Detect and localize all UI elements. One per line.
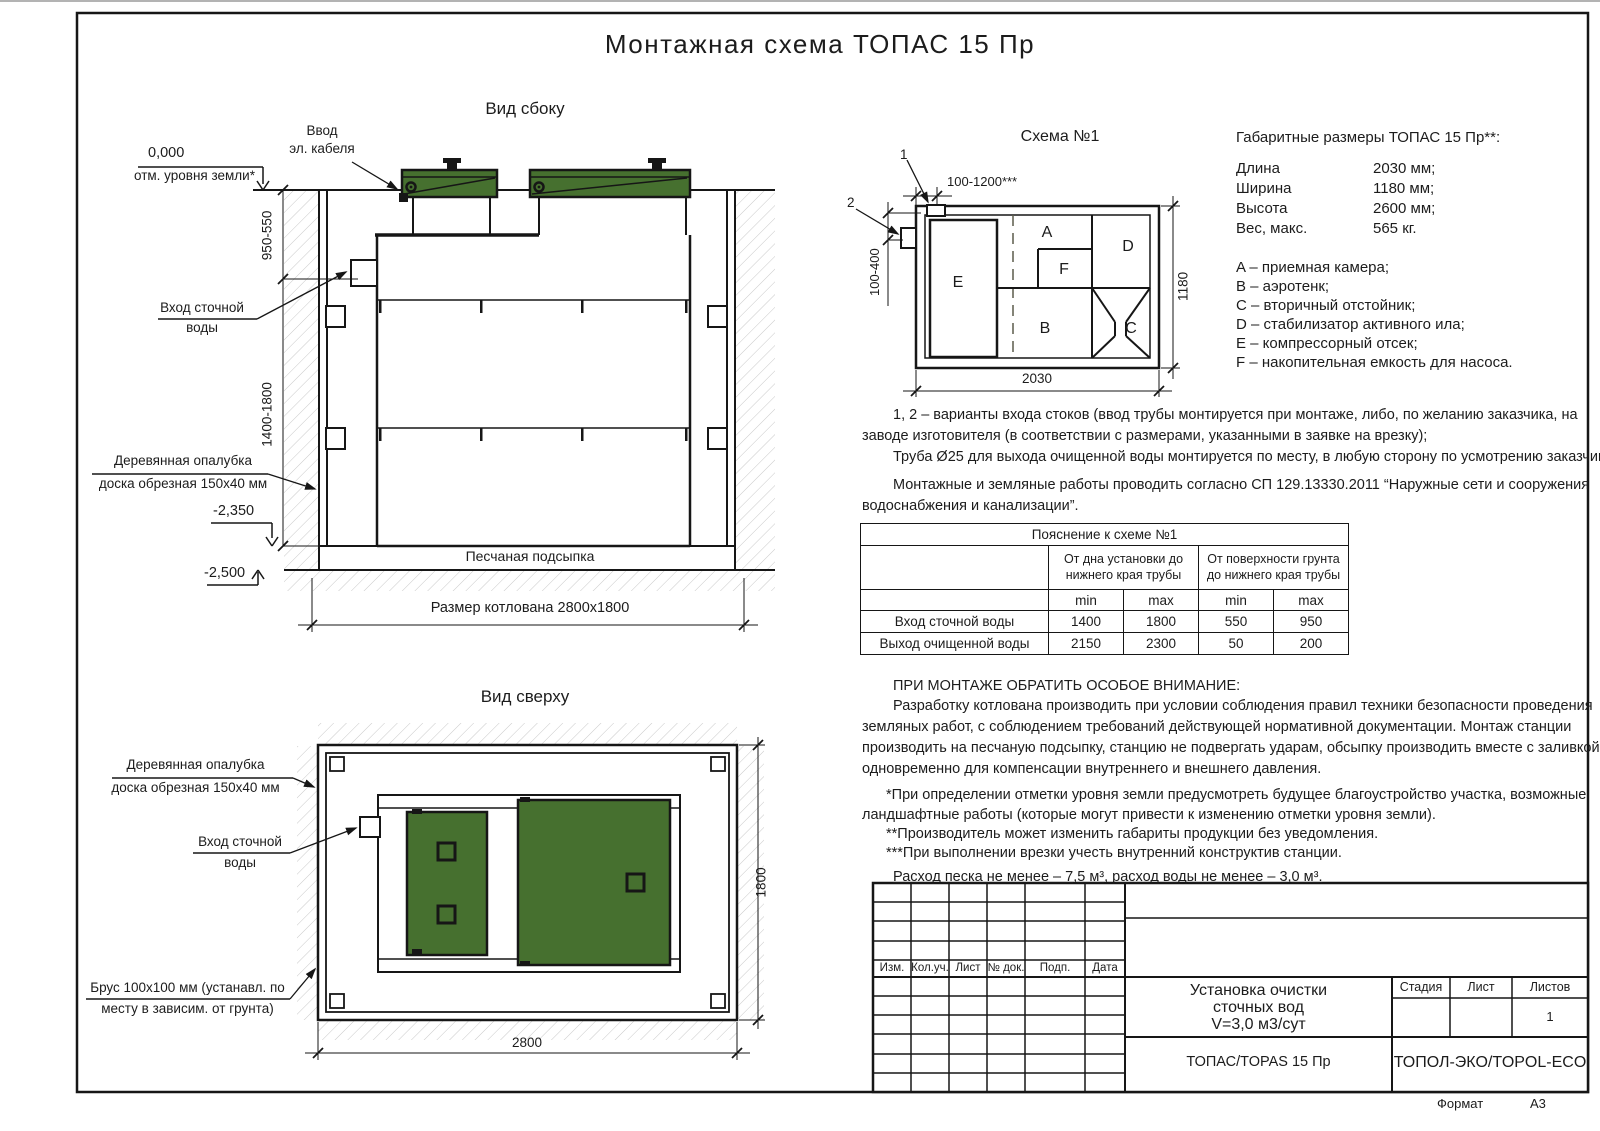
dim-row-value: 2600 мм; xyxy=(1373,201,1435,218)
table-colgroup-1: От дна установки до нижнего края трубы xyxy=(1049,546,1199,590)
note-line: Монтажные и земляные работы проводить со… xyxy=(893,478,1589,494)
table-empty-cell xyxy=(861,590,1049,611)
inlet-label-line2: воды xyxy=(185,856,295,871)
footnote-line: ***При выполнении врезки учесть внутренн… xyxy=(886,846,1342,862)
ground-level-note: отм. уровня земли* xyxy=(134,169,255,184)
scheme-dim-left: 100-400 xyxy=(868,237,882,307)
level-2350: -2,350 xyxy=(213,504,254,520)
stamp-col-data: Дата xyxy=(1085,962,1125,975)
table-colgroup-2: От поверхности грунта до нижнего края тр… xyxy=(1199,546,1349,590)
note-line: заводе изготовителя (в соответствии с ра… xyxy=(862,429,1427,445)
compartment-c: C xyxy=(1120,320,1142,338)
cable-entry-label-line1: Ввод xyxy=(292,124,352,139)
stamp-col-izm: Изм. xyxy=(873,962,911,975)
top-view-label: Вид сверху xyxy=(430,688,620,707)
legend-item: D – стабилизатор активного ила; xyxy=(1236,317,1465,334)
stamp-sheets-value: 1 xyxy=(1512,1010,1588,1024)
pit-size-label: Размер котлована 2800х1800 xyxy=(380,601,680,617)
formwork-label-line2: доска обрезная 150х40 мм xyxy=(88,477,278,492)
scheme-dim-width: 2030 xyxy=(1007,372,1067,387)
explanation-table: Пояснение к схеме №1 От дна установки до… xyxy=(860,523,1349,655)
attention-line: Разработку котлована производить при усл… xyxy=(893,699,1593,715)
footnote-line: *При определении отметки уровня земли пр… xyxy=(886,788,1586,804)
dimensions-title: Габаритные размеры ТОПАС 15 Пр**: xyxy=(1236,130,1500,147)
dim-row-label: Вес, макс. xyxy=(1236,221,1307,238)
table-row: Вход сточной воды 1400 1800 550 950 xyxy=(861,611,1349,633)
scheme-label: Схема №1 xyxy=(975,128,1145,146)
table-max-header: max xyxy=(1124,590,1199,611)
dim-row-label: Ширина xyxy=(1236,181,1291,198)
table-cell: 1800 xyxy=(1124,611,1199,633)
table-title: Пояснение к схеме №1 xyxy=(861,524,1349,546)
page-title: Монтажная схема ТОПАС 15 Пр xyxy=(470,30,1170,59)
compartment-d: D xyxy=(1117,238,1139,256)
compartment-f: F xyxy=(1053,261,1075,279)
note-line: водоснабжения и канализации”. xyxy=(862,499,1079,515)
note-line: 1, 2 – варианты входа стоков (ввод трубы… xyxy=(893,408,1578,424)
legend-item: E – компрессорный отсек; xyxy=(1236,336,1418,353)
ground-level-value: 0,000 xyxy=(148,146,184,162)
table-cell: 2300 xyxy=(1124,633,1199,655)
note-line: Труба Ø25 для выхода очищенной воды монт… xyxy=(893,450,1600,466)
dim-950-550: 950-550 xyxy=(261,195,276,275)
table-cell: 550 xyxy=(1199,611,1274,633)
formwork-label-line1: Деревянная опалубка xyxy=(88,454,278,469)
table-row: Выход очищенной воды 2150 2300 50 200 xyxy=(861,633,1349,655)
table-cell: 950 xyxy=(1274,611,1349,633)
stamp-col-ndok: № док. xyxy=(987,962,1025,975)
stamp-stage-header: Стадия xyxy=(1392,981,1450,995)
table-empty-cell xyxy=(861,546,1049,590)
consumption-note: Расход песка не менее – 7,5 м³, расход в… xyxy=(893,870,1322,886)
sand-label: Песчаная подсыпка xyxy=(390,549,670,564)
format-value: А3 xyxy=(1530,1097,1546,1111)
left-lid xyxy=(402,158,497,197)
doc-title-line3: V=3,0 м3/сут xyxy=(1125,1016,1392,1034)
stamp-col-koluch: Кол.уч. xyxy=(911,962,949,975)
top-view-linework xyxy=(297,723,764,1040)
attention-title: ПРИ МОНТАЖЕ ОБРАТИТЬ ОСОБОЕ ВНИМАНИЕ: xyxy=(893,679,1240,695)
compartment-a: A xyxy=(1036,224,1058,242)
right-lid xyxy=(530,158,690,197)
formwork-label-line2: доска обрезная 150х40 мм xyxy=(98,781,293,796)
table-row-label: Выход очищенной воды xyxy=(861,633,1049,655)
footnote-line: **Производитель может изменить габариты … xyxy=(886,827,1378,843)
table-cell: 2150 xyxy=(1049,633,1124,655)
beam-label-line1: Брус 100х100 мм (устанавл. по xyxy=(80,981,295,996)
format-label: Формат xyxy=(1437,1097,1483,1111)
doc-title-line1: Установка очистки xyxy=(1125,982,1392,1000)
dim-row-label: Длина xyxy=(1236,161,1280,178)
table-cell: 1400 xyxy=(1049,611,1124,633)
table-cell: 50 xyxy=(1199,633,1274,655)
scheme-dim-top: 100-1200*** xyxy=(947,175,1017,189)
legend-item: F – накопительная емкость для насоса. xyxy=(1236,355,1513,372)
scheme-callout-1: 1 xyxy=(900,148,908,163)
table-min-header: min xyxy=(1199,590,1274,611)
side-view-linework xyxy=(253,158,775,591)
footnote-line: ландшафтные работы (которые могут привес… xyxy=(862,808,1436,824)
dim-row-value: 1180 мм; xyxy=(1373,181,1434,198)
scheme-callout-2: 2 xyxy=(847,196,855,211)
table-min-header: min xyxy=(1049,590,1124,611)
top-view-dim-height: 1800 xyxy=(755,847,770,917)
cable-entry-label-line2: эл. кабеля xyxy=(282,142,362,157)
legend-item: A – приемная камера; xyxy=(1236,260,1389,277)
scheme-dim-height: 1180 xyxy=(1177,256,1192,316)
stamp-sheet-header: Лист xyxy=(1450,981,1512,995)
compartment-e: E xyxy=(947,274,969,292)
dim-row-value: 565 кг. xyxy=(1373,221,1417,238)
inlet-label-line1: Вход сточной xyxy=(185,835,295,850)
dim-row-value: 2030 мм; xyxy=(1373,161,1435,178)
attention-line: одновременно для компенсации внутреннего… xyxy=(862,762,1321,778)
inlet-label-line1: Вход сточной xyxy=(148,301,256,316)
top-view-dim-width: 2800 xyxy=(497,1036,557,1051)
attention-line: производить на песчаную подсыпку, станци… xyxy=(862,741,1600,757)
side-view-label: Вид сбоку xyxy=(430,100,620,119)
attention-line: земляных работ, с соблюдением требований… xyxy=(862,720,1571,736)
table-row-label: Вход сточной воды xyxy=(861,611,1049,633)
inlet-label-line2: воды xyxy=(148,321,256,336)
stamp-col-podp: Подп. xyxy=(1025,962,1085,975)
doc-title-line2: сточных вод xyxy=(1125,999,1392,1017)
table-cell: 200 xyxy=(1274,633,1349,655)
dim-row-label: Высота xyxy=(1236,201,1288,218)
stamp-col-list: Лист xyxy=(949,962,987,975)
stamp-sheets-header: Листов xyxy=(1512,981,1588,995)
company-name: ТОПОЛ-ЭКО/TOPOL-ECO xyxy=(1392,1054,1588,1072)
legend-item: C – вторичный отстойник; xyxy=(1236,298,1415,315)
compartment-b: B xyxy=(1034,320,1056,338)
legend-item: B – аэротенк; xyxy=(1236,279,1329,296)
drawing-sheet: { "title": "Монтажная схема ТОПАС 15 Пр"… xyxy=(0,0,1600,1131)
formwork-label-line1: Деревянная опалубка xyxy=(98,758,293,773)
beam-label-line2: месту в зависим. от грунта) xyxy=(80,1002,295,1017)
dim-1400-1800: 1400-1800 xyxy=(261,369,276,459)
scheme-linework xyxy=(901,205,1159,368)
table-max-header: max xyxy=(1274,590,1349,611)
product-name: ТОПАС/TOPAS 15 Пр xyxy=(1125,1055,1392,1071)
level-2500: -2,500 xyxy=(204,566,245,582)
